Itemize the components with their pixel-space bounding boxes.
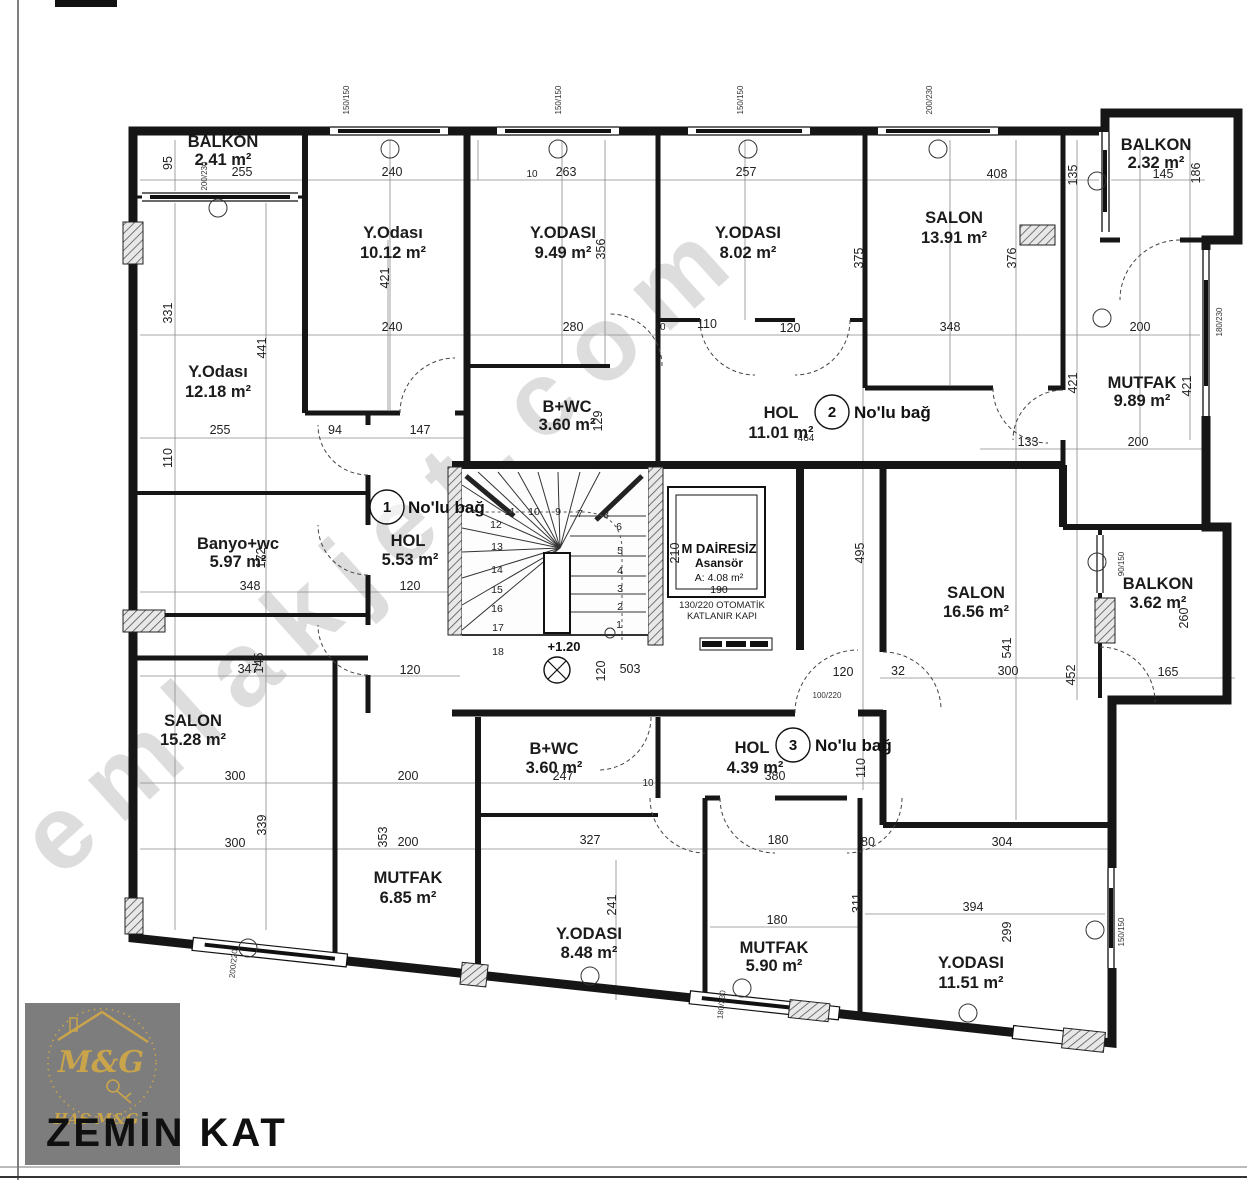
dim-label: 120 [594, 661, 608, 682]
stair-step-number: 14 [491, 564, 503, 576]
stair-newel [544, 553, 570, 633]
room-label: BALKON [1123, 575, 1194, 593]
window-size-label: 100/220 [813, 691, 842, 700]
room-area: 6.85 m² [380, 889, 437, 907]
stair-step-number: 17 [492, 622, 504, 634]
dim-label: 300 [998, 664, 1019, 678]
stair-step-number: 12 [490, 519, 502, 531]
dim-label: 95 [161, 156, 175, 170]
dim-label: 280 [563, 320, 584, 334]
window-mark-icon [1086, 921, 1104, 939]
stair-step-number: 2 [617, 601, 623, 613]
dim-label: 110 [697, 317, 717, 331]
room-label: SALON [164, 712, 222, 730]
stair-step-number: 9 [555, 506, 561, 518]
dim-label: 147 [410, 423, 431, 437]
room-label: Y.ODASI [556, 925, 622, 943]
room-area: 15.28 m² [160, 731, 227, 749]
level-mark [544, 657, 570, 683]
stair-step-number: 13 [491, 541, 503, 553]
room-area: 11.51 m² [938, 974, 1004, 992]
stair-step-number: 18 [492, 646, 504, 658]
dim-label: 394 [963, 900, 984, 914]
stair-step-number: 16 [491, 603, 503, 615]
dim-label: 10 [526, 169, 538, 180]
window-size-label: 150/150 [736, 85, 745, 114]
unit-label: No'lu bağ [815, 736, 892, 755]
dim-label: 120 [400, 579, 421, 593]
stair-step-number: 4 [617, 565, 623, 577]
dim-label: 339 [255, 815, 269, 836]
dim-label: 200 [398, 835, 419, 849]
dim-label: 452 [1064, 665, 1078, 686]
window-size-label: 200/230 [200, 161, 209, 190]
window-top-1 [330, 124, 448, 138]
dim-label: 257 [736, 165, 757, 179]
window-top-2 [497, 124, 619, 138]
room-area: 3.60 m² [539, 416, 596, 434]
dim-label: 120 [833, 665, 854, 679]
room-area: 5.90 m² [746, 957, 803, 975]
dim-label: 32 [891, 664, 905, 678]
dim-label: 186 [1189, 163, 1203, 184]
unit-label: No'lu bağ [854, 403, 931, 422]
dim-label: 120 [780, 321, 801, 335]
dim-label: 331 [161, 303, 175, 324]
dim-label: 464 [798, 433, 815, 444]
window-mark-icon [581, 967, 599, 985]
dim-label: 348 [240, 579, 261, 593]
room-label: B+WC [529, 740, 578, 758]
dim-label: 300 [225, 836, 246, 850]
room-area: 12.18 m² [185, 383, 252, 401]
dim-label: 200 [398, 769, 419, 783]
level-mark-label: +1.20 [548, 639, 581, 654]
dim-label: 240 [382, 165, 403, 179]
room-area: 16.56 m² [943, 603, 1010, 621]
logo-monogram: M&G [57, 1045, 144, 1080]
stair-step-number: 7 [577, 508, 583, 520]
room-label: BALKON [188, 133, 259, 151]
dim-label: 172 [254, 548, 268, 569]
dim-label: 210 [668, 543, 682, 564]
dim-label: 247 [553, 769, 574, 783]
window-mark-icon [929, 140, 947, 158]
window-right-3 [1105, 868, 1117, 968]
stair-step-number: 5 [617, 545, 623, 557]
page-title: ZEMİN KAT [46, 1111, 288, 1155]
room-area: 9.89 m² [1114, 392, 1171, 410]
elevator-area: A: 4.08 m² [695, 572, 744, 584]
window-size-label: 90/150 [1117, 551, 1126, 576]
room-area: 8.02 m² [720, 244, 777, 262]
dim-label: 380 [765, 769, 786, 783]
dim-label: 200 [1130, 320, 1151, 334]
window-size-label: 180/230 [1215, 307, 1224, 336]
dim-label: 165 [1158, 665, 1179, 679]
unit-label: No'lu bağ [408, 498, 485, 517]
room-label: Y.Odası [363, 224, 423, 242]
room-label: B+WC [542, 398, 591, 416]
dim-label: 327 [580, 833, 601, 847]
room-area: 8.48 m² [561, 944, 618, 962]
window-size-label: 200/230 [925, 85, 934, 114]
dim-label: 376 [1005, 248, 1019, 269]
dim-label: 180 [767, 913, 788, 927]
dim-label: 503 [620, 662, 641, 676]
room-label: HOL [391, 532, 426, 550]
room-area: 13.91 m² [921, 229, 988, 247]
elevator-door-note2: KATLANIR KAPI [687, 611, 757, 622]
window-size-label: 150/150 [1117, 917, 1126, 946]
floor-plan-page: emlakjet.com [0, 0, 1247, 1180]
window-balcony-3 [1094, 535, 1106, 593]
room-label: HOL [764, 404, 799, 422]
window-mark-icon [549, 140, 567, 158]
window-right-2 [1200, 250, 1211, 416]
room-label: MUTFAK [374, 869, 443, 887]
elevator-width: 190 [710, 584, 728, 596]
dim-label: 356 [594, 239, 608, 260]
room-label: BALKON [1121, 136, 1192, 154]
dim-label: 421 [1180, 376, 1194, 397]
window-top-3 [688, 124, 810, 138]
dim-label: 541 [1000, 638, 1014, 659]
stair-step-number: 10 [528, 506, 540, 518]
dim-label: 375 [852, 248, 866, 269]
room-area: 5.53 m² [382, 551, 439, 569]
room-label: MUTFAK [740, 939, 809, 957]
room-label: SALON [947, 584, 1005, 602]
window-mark-icon [1093, 309, 1111, 327]
dim-label: 408 [987, 167, 1008, 181]
dim-label: 300 [225, 769, 246, 783]
dim-label: 421 [1066, 373, 1080, 394]
stair-step-number: 15 [491, 584, 503, 596]
room-label: MUTFAK [1108, 374, 1177, 392]
dim-label: 240 [382, 320, 403, 334]
title-block: M&G HAS M&G ZEMİN KAT [25, 1003, 288, 1165]
dim-label: 255 [232, 165, 253, 179]
dim-label: 311 [850, 893, 864, 913]
window-right-1 [1099, 132, 1111, 232]
window-mark-icon [959, 1004, 977, 1022]
window-mark-icon [739, 140, 757, 158]
stair-step-number: 1 [616, 619, 622, 631]
stair-step-number: 8 [603, 509, 609, 521]
room-area: 10.12 m² [360, 244, 427, 262]
dim-label: 255 [210, 423, 231, 437]
page-tab [55, 0, 117, 7]
window-size-label: 150/150 [554, 85, 563, 114]
unit-number: 2 [828, 404, 836, 421]
stair-step-number: 6 [616, 521, 622, 533]
stair-step-number: 3 [617, 583, 623, 595]
unit-number: 3 [789, 737, 797, 754]
elevator-door-note1: 130/220 OTOMATİK [679, 600, 765, 611]
dim-label: 145 [252, 653, 266, 674]
dim-label: 304 [992, 835, 1013, 849]
dim-label: 348 [940, 320, 961, 334]
floor-plan-drawing: emlakjet.com [0, 0, 1247, 1180]
room-label: HOL [735, 739, 770, 757]
room-label: Y.ODASI [938, 954, 1004, 972]
dim-label: 120 [400, 663, 421, 677]
unit-number: 1 [383, 499, 391, 516]
dim-label: 241 [605, 895, 619, 916]
room-label: Y.Odası [188, 363, 248, 381]
dim-label: 421 [378, 268, 392, 289]
dim-label: 133 [1018, 435, 1039, 449]
window-size-label: 180/230 [716, 989, 728, 1019]
room-label: SALON [925, 209, 983, 227]
dim-label: 135 [1066, 165, 1080, 186]
dim-label: 441 [255, 338, 269, 359]
dim-label: 80 [861, 835, 875, 849]
dim-label: 129 [591, 411, 605, 432]
dim-label: 180 [768, 833, 789, 847]
dim-label: 110 [854, 758, 868, 778]
window-size-label: 200/220 [228, 948, 240, 978]
window-top-4 [878, 124, 998, 138]
dim-label: 263 [556, 165, 577, 179]
dim-label: 10 [642, 778, 654, 789]
window-size-label: 150/150 [342, 85, 351, 114]
stair-step-number: 11 [505, 506, 516, 518]
window-mark-icon [733, 979, 751, 997]
room-label: Y.ODASI [530, 224, 596, 242]
elevator-line2: Asansör [695, 556, 743, 570]
elevator-line1: M DAİRESİZ [681, 541, 756, 556]
dim-label: 495 [853, 543, 867, 564]
window-balcony-1 [142, 191, 298, 203]
dim-label: 110 [161, 448, 175, 468]
room-area: 9.49 m² [535, 244, 592, 262]
dim-label: 299 [1000, 922, 1014, 943]
dim-label: 145 [1153, 167, 1174, 181]
dim-label: 94 [328, 423, 342, 437]
room-label: Y.ODASI [715, 224, 781, 242]
dim-label: 200 [1128, 435, 1149, 449]
dim-label: 353 [376, 827, 390, 848]
dim-label: 10 [654, 322, 666, 333]
dim-label: 260 [1177, 608, 1191, 629]
